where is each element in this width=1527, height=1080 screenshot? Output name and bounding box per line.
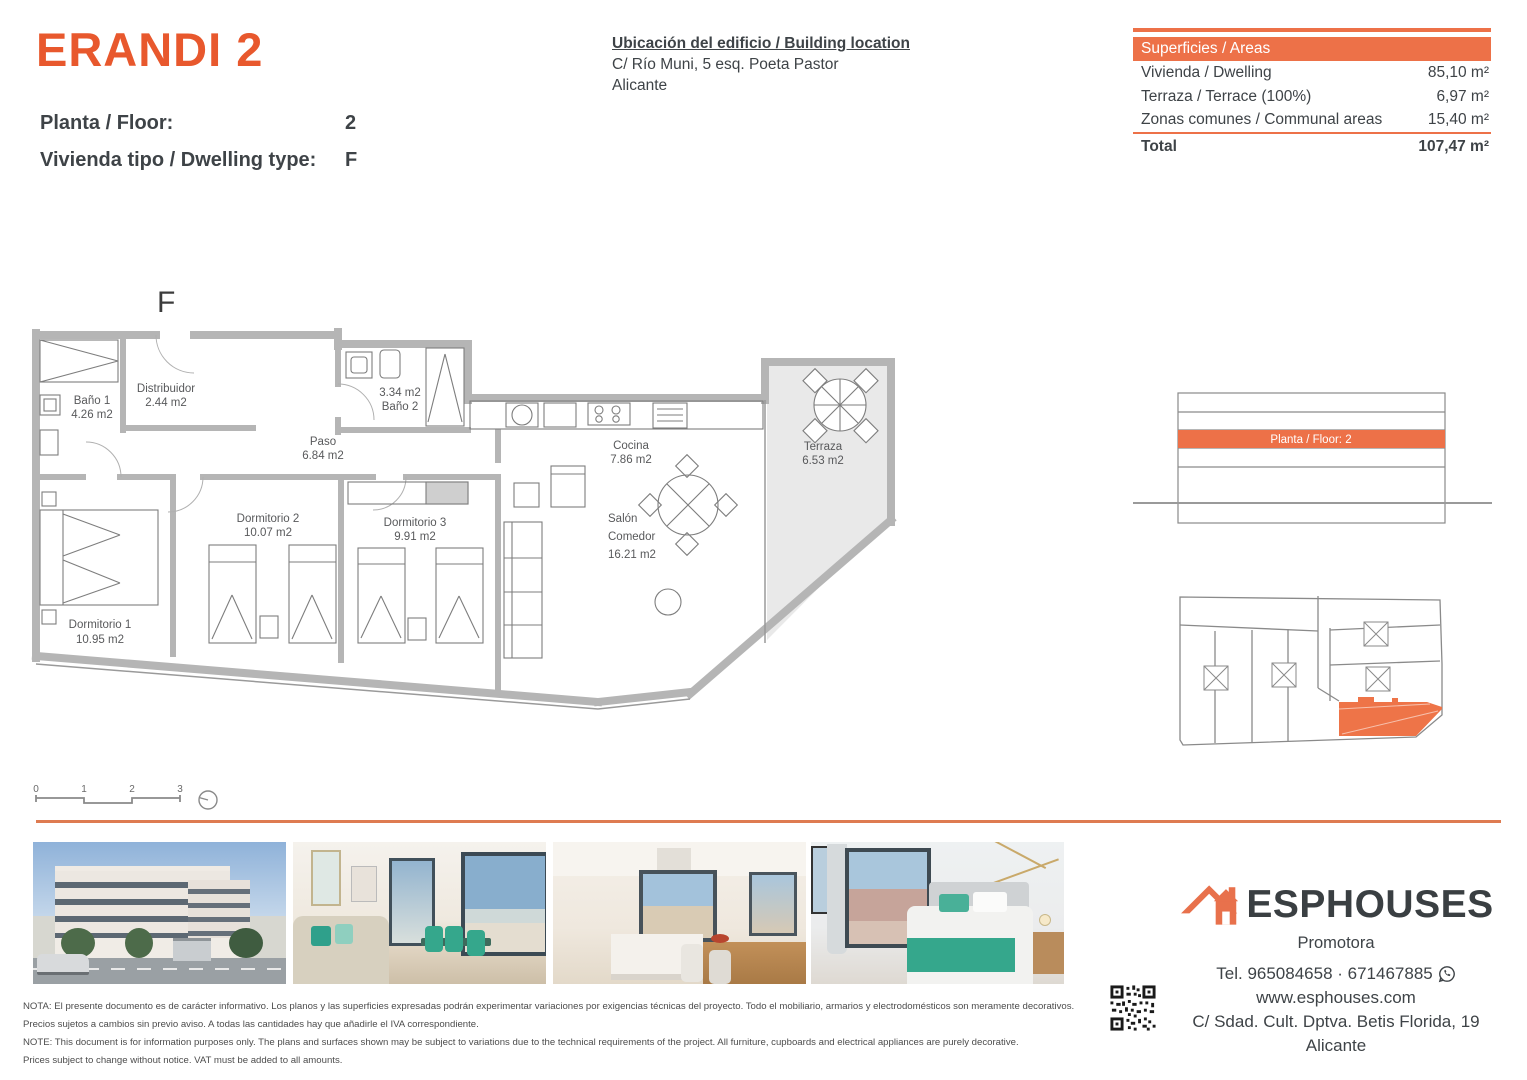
area-label: Terraza / Terrace (100%) [1141, 85, 1311, 109]
location-title: Ubicación del edificio / Building locati… [612, 33, 910, 54]
svg-text:10.07 m2: 10.07 m2 [244, 527, 292, 539]
area-row-communal: Zonas comunes / Communal areas 15,40 m² [1133, 108, 1491, 134]
room-label-bano2: 3.34 m2 [379, 387, 421, 399]
developer-brand: ESPHOUSES Promotora [1168, 876, 1504, 953]
total-value: 107,47 m² [1418, 134, 1489, 159]
site-key-plan [1130, 568, 1495, 760]
highlighted-unit [1339, 697, 1442, 736]
address-line1: C/ Sdad. Cult. Dptva. Betis Florida, 19 [1168, 1010, 1504, 1034]
nightstand [1033, 932, 1064, 974]
cushion [335, 924, 353, 944]
wall-art [351, 866, 377, 902]
car [37, 954, 89, 975]
floor-plan: Baño 1 4.26 m2 Distribuidor 2.44 m2 Paso… [28, 300, 908, 780]
door-arcs [86, 335, 406, 512]
svg-text:10.95 m2: 10.95 m2 [76, 634, 124, 646]
lamp [1039, 914, 1051, 926]
area-label: Zonas comunes / Communal areas [1141, 108, 1382, 132]
wall-art [311, 850, 341, 906]
kitchen-appliances [470, 401, 763, 429]
area-value: 85,10 m² [1428, 61, 1489, 85]
svg-text:6.53 m2: 6.53 m2 [802, 455, 844, 467]
room-label-cocina: Cocina [613, 440, 649, 452]
room-label-dormitorio1: Dormitorio 1 [69, 619, 132, 631]
room-label-distribuidor: Distribuidor [137, 383, 195, 395]
svg-text:Baño 2: Baño 2 [382, 401, 418, 413]
whatsapp-icon [1438, 965, 1456, 983]
areas-top-bar [1133, 28, 1491, 32]
disclaimer-en-2: Prices subject to change without notice.… [23, 1052, 1108, 1070]
bus-stop [173, 938, 211, 961]
bedroom3-furniture [348, 482, 483, 643]
address-line2: Alicante [1168, 1034, 1504, 1058]
brochure-page: ERANDI 2 Planta / Floor: 2 Vivienda tipo… [0, 0, 1527, 1080]
chair [709, 950, 731, 984]
svg-text:Comedor: Comedor [608, 531, 655, 543]
floor-label: Planta / Floor: [40, 112, 173, 134]
room-label-salon: Salón Comedor 16.21 m2 [608, 513, 656, 561]
svg-text:4.26 m2: 4.26 m2 [71, 409, 113, 421]
page-title: ERANDI 2 [36, 22, 263, 77]
photo-building-exterior [33, 842, 286, 984]
photo-bedroom [811, 842, 1064, 984]
window [749, 872, 797, 936]
window [639, 870, 717, 942]
svg-text:3: 3 [177, 784, 183, 795]
tree [125, 928, 153, 958]
area-row-dwelling: Vivienda / Dwelling 85,10 m² [1133, 61, 1491, 85]
location-city: Alicante [612, 75, 910, 96]
areas-table: Superficies / Areas Vivienda / Dwelling … [1133, 28, 1491, 159]
total-label: Total [1141, 134, 1177, 159]
brand-subtitle: Promotora [1168, 934, 1504, 953]
phone-numbers: Tel. 965084658 · 671467885 [1216, 962, 1432, 986]
esphouses-logo-icon [1178, 876, 1244, 934]
elevation-floor-label: Planta / Floor: 2 [1270, 434, 1351, 446]
photo-living-room [293, 842, 546, 984]
chair [681, 944, 703, 982]
area-row-total: Total 107,47 m² [1133, 134, 1491, 159]
photo-kitchen-dining [553, 842, 806, 984]
disclaimer: NOTA: El presente documento es de caráct… [23, 998, 1108, 1070]
north-compass-icon [199, 791, 217, 809]
section-divider [36, 820, 1501, 823]
svg-text:2: 2 [129, 784, 135, 795]
contact-block: Tel. 965084658 · 671467885 www.esphouses… [1168, 962, 1504, 1058]
building-location: Ubicación del edificio / Building locati… [612, 33, 910, 96]
room-label-terraza: Terraza [804, 441, 843, 453]
svg-text:1: 1 [81, 784, 87, 795]
chair [467, 930, 485, 956]
brand-name: ESPHOUSES [1246, 883, 1493, 927]
room-label-dormitorio3: Dormitorio 3 [384, 517, 447, 529]
wall-decor-line [966, 842, 1046, 869]
svg-text:9.91 m2: 9.91 m2 [394, 531, 436, 543]
pillow [939, 894, 969, 912]
areas-header: Superficies / Areas [1133, 37, 1491, 61]
svg-text:2.44 m2: 2.44 m2 [145, 397, 187, 409]
svg-text:6.84 m2: 6.84 m2 [302, 450, 344, 462]
chair [425, 926, 443, 952]
room-label-bano1: Baño 1 [74, 395, 110, 407]
disclaimer-es-1: NOTA: El presente documento es de caráct… [23, 998, 1108, 1016]
fruit-bowl [711, 934, 729, 943]
bedroom1-furniture [40, 492, 158, 624]
building-elevation: Planta / Floor: 2 [1130, 383, 1495, 528]
bedroom2-furniture [209, 545, 336, 643]
dwelling-type-row: Vivienda tipo / Dwelling type: F [40, 149, 420, 172]
svg-text:Salón: Salón [608, 513, 637, 525]
room-label-paso: Paso [310, 436, 336, 448]
svg-text:7.86 m2: 7.86 m2 [610, 454, 652, 466]
dwelling-type-value: F [345, 149, 357, 172]
floor-row: Planta / Floor: 2 [40, 112, 420, 135]
tree [229, 928, 263, 958]
chair [445, 926, 463, 952]
room-label-dormitorio2: Dormitorio 2 [237, 513, 300, 525]
logo-door [1223, 912, 1230, 925]
dwelling-type-label: Vivienda tipo / Dwelling type: [40, 149, 316, 171]
stair-cores [1204, 622, 1390, 691]
scale-bar: 0 1 2 3 [30, 782, 230, 818]
disclaimer-es-2: Precios sujetos a cambios sin previo avi… [23, 1016, 1108, 1034]
floor-value: 2 [345, 112, 356, 135]
website: www.esphouses.com [1168, 986, 1504, 1010]
svg-text:0: 0 [33, 784, 39, 795]
location-street: C/ Río Muni, 5 esq. Poeta Pastor [612, 54, 910, 75]
pillow [973, 892, 1007, 912]
area-value: 15,40 m² [1428, 108, 1489, 132]
svg-text:16.21 m2: 16.21 m2 [608, 549, 656, 561]
area-row-terrace: Terraza / Terrace (100%) 6,97 m² [1133, 85, 1491, 109]
disclaimer-en-1: NOTE: This document is for information p… [23, 1034, 1108, 1052]
area-value: 6,97 m² [1436, 85, 1489, 109]
cushion [311, 926, 331, 946]
qr-code [1108, 984, 1158, 1032]
bed-throw [907, 938, 1015, 972]
curtain [827, 844, 847, 954]
area-label: Vivienda / Dwelling [1141, 61, 1272, 85]
